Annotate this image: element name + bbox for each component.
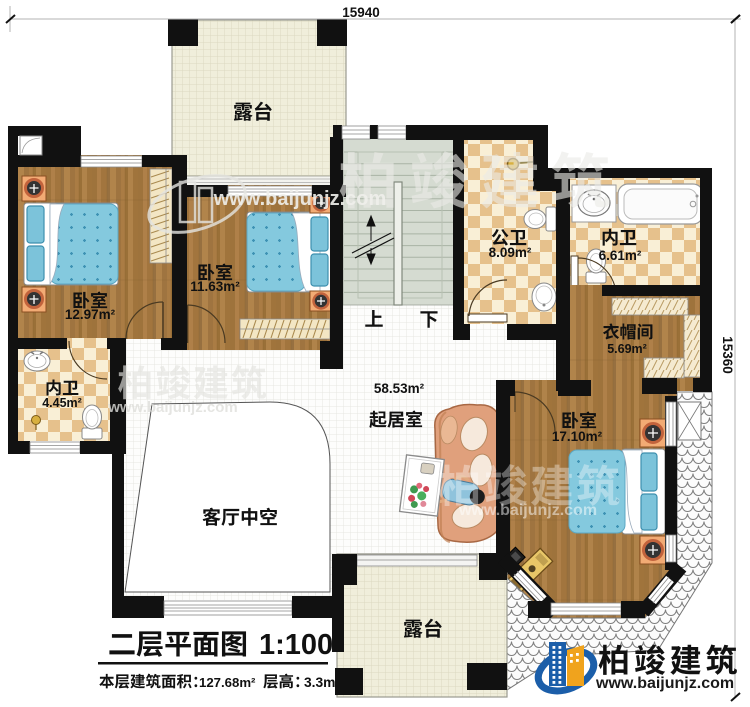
svg-text:5.69m²: 5.69m² [607, 342, 647, 356]
svg-text:www.baijunjz.com: www.baijunjz.com [107, 399, 237, 416]
svg-text:8.09m²: 8.09m² [489, 245, 532, 260]
svg-text:www.baijunjz.com: www.baijunjz.com [458, 502, 597, 519]
svg-text:15940: 15940 [342, 5, 380, 20]
svg-text:6.61m²: 6.61m² [599, 248, 642, 263]
svg-text:15360: 15360 [720, 336, 735, 374]
svg-text:3.3m: 3.3m [304, 675, 335, 690]
svg-text:www.baijunjz.com: www.baijunjz.com [213, 188, 387, 210]
svg-text:17.10m²: 17.10m² [552, 429, 603, 444]
svg-text:12.97m²: 12.97m² [65, 307, 116, 322]
svg-text:4.45m²: 4.45m² [42, 396, 82, 410]
svg-text:11.63m²: 11.63m² [190, 279, 240, 294]
svg-text:127.68m²: 127.68m² [199, 675, 256, 690]
svg-text:1:100: 1:100 [259, 629, 333, 661]
svg-text:58.53m²: 58.53m² [374, 381, 425, 396]
svg-text:www.baijunjz.com: www.baijunjz.com [595, 675, 734, 692]
